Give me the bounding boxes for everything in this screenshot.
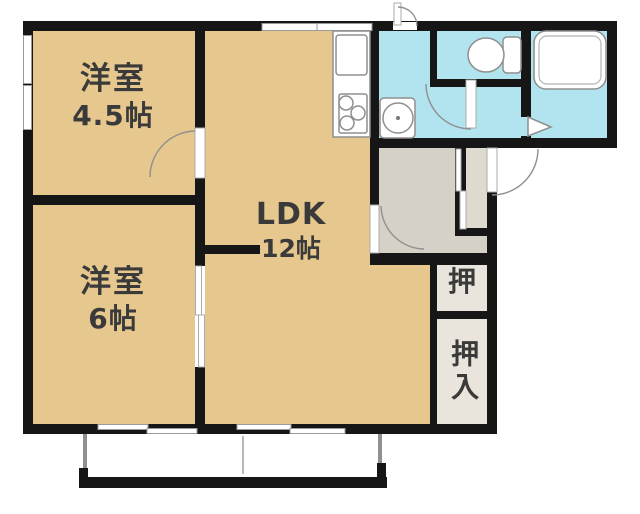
balcony-divider-line — [242, 436, 244, 474]
kitchen-sink-icon — [336, 35, 367, 75]
top-door-leaf — [394, 3, 401, 25]
genkan-sliding-panel-a — [456, 149, 461, 191]
toilet-tank — [503, 37, 521, 73]
room-label-western-1: 洋室 4.5帖 — [33, 61, 193, 133]
closet-label-lower: 押入 — [446, 326, 480, 418]
balcony-window-2-pane-a — [237, 425, 291, 430]
room-label-western-2: 洋室 6帖 — [33, 264, 193, 336]
room-name: 洋室 — [33, 61, 193, 99]
window-left-lower-pane — [24, 86, 32, 130]
wall-toilet-left — [430, 31, 437, 87]
room-size: 4.5帖 — [33, 99, 193, 133]
wall-right-bath — [607, 21, 617, 148]
balcony-floor — [83, 434, 382, 477]
toilet-door-leaf — [466, 80, 476, 128]
entrance-door-swing-arc — [492, 149, 538, 195]
balcony-window-1-pane-a — [98, 425, 148, 430]
western-2-sliding-panel-b — [199, 315, 205, 367]
wall-rooms-vertical-lower — [195, 367, 205, 424]
western-1-door-leaf — [195, 128, 205, 178]
wall-rooms-vertical-middle — [195, 178, 205, 266]
room-size: 6帖 — [33, 302, 193, 336]
wall-closet-left — [430, 265, 437, 424]
western-2-sliding-panel-a — [196, 266, 202, 315]
balcony-corner-right — [377, 463, 386, 478]
balcony-window-2-pane-b — [290, 429, 345, 434]
bathtub-icon — [534, 31, 606, 89]
wall-bath-divider-lower — [521, 136, 531, 148]
window-left-upper-pane — [24, 36, 32, 84]
room-label-ldk: LDK 12帖 — [236, 197, 346, 264]
balcony-wall-bottom — [79, 477, 387, 488]
closet-label-upper: 押 — [437, 265, 487, 299]
balcony-window-1-pane-b — [147, 429, 197, 434]
entry-genkan-floor — [466, 148, 487, 228]
hallway-door-leaf — [370, 205, 379, 253]
room-size: 12帖 — [236, 234, 346, 265]
wall-hall-bottom — [370, 253, 497, 265]
stove-burners-icon — [339, 96, 353, 110]
wall-under-wet-area — [370, 138, 617, 148]
stove-burner-3 — [340, 116, 354, 130]
washing-machine-dot — [396, 116, 400, 120]
window-top-right-pane — [317, 24, 372, 31]
balcony-wall-left — [83, 434, 87, 472]
wall-bath-divider-upper — [521, 31, 531, 117]
wall-closet-divider — [437, 311, 487, 319]
window-top-left-pane — [262, 24, 317, 31]
balcony-corner-left — [79, 468, 88, 478]
room-name: LDK — [236, 197, 346, 234]
floor-plan-canvas: 洋室 4.5帖 洋室 6帖 LDK 12帖 押 押入 — [0, 0, 640, 514]
wall-rooms-vertical-upper — [195, 31, 205, 128]
genkan-sliding-panel-b — [460, 191, 466, 229]
entrance-door-leaf — [487, 148, 497, 192]
toilet-icon — [468, 38, 504, 72]
room-name: 洋室 — [33, 264, 193, 302]
wall-between-western-rooms — [23, 195, 205, 205]
wall-kitchen-hall — [370, 31, 379, 205]
balcony-wall-right — [378, 434, 382, 466]
stove-burner-2 — [351, 106, 365, 120]
